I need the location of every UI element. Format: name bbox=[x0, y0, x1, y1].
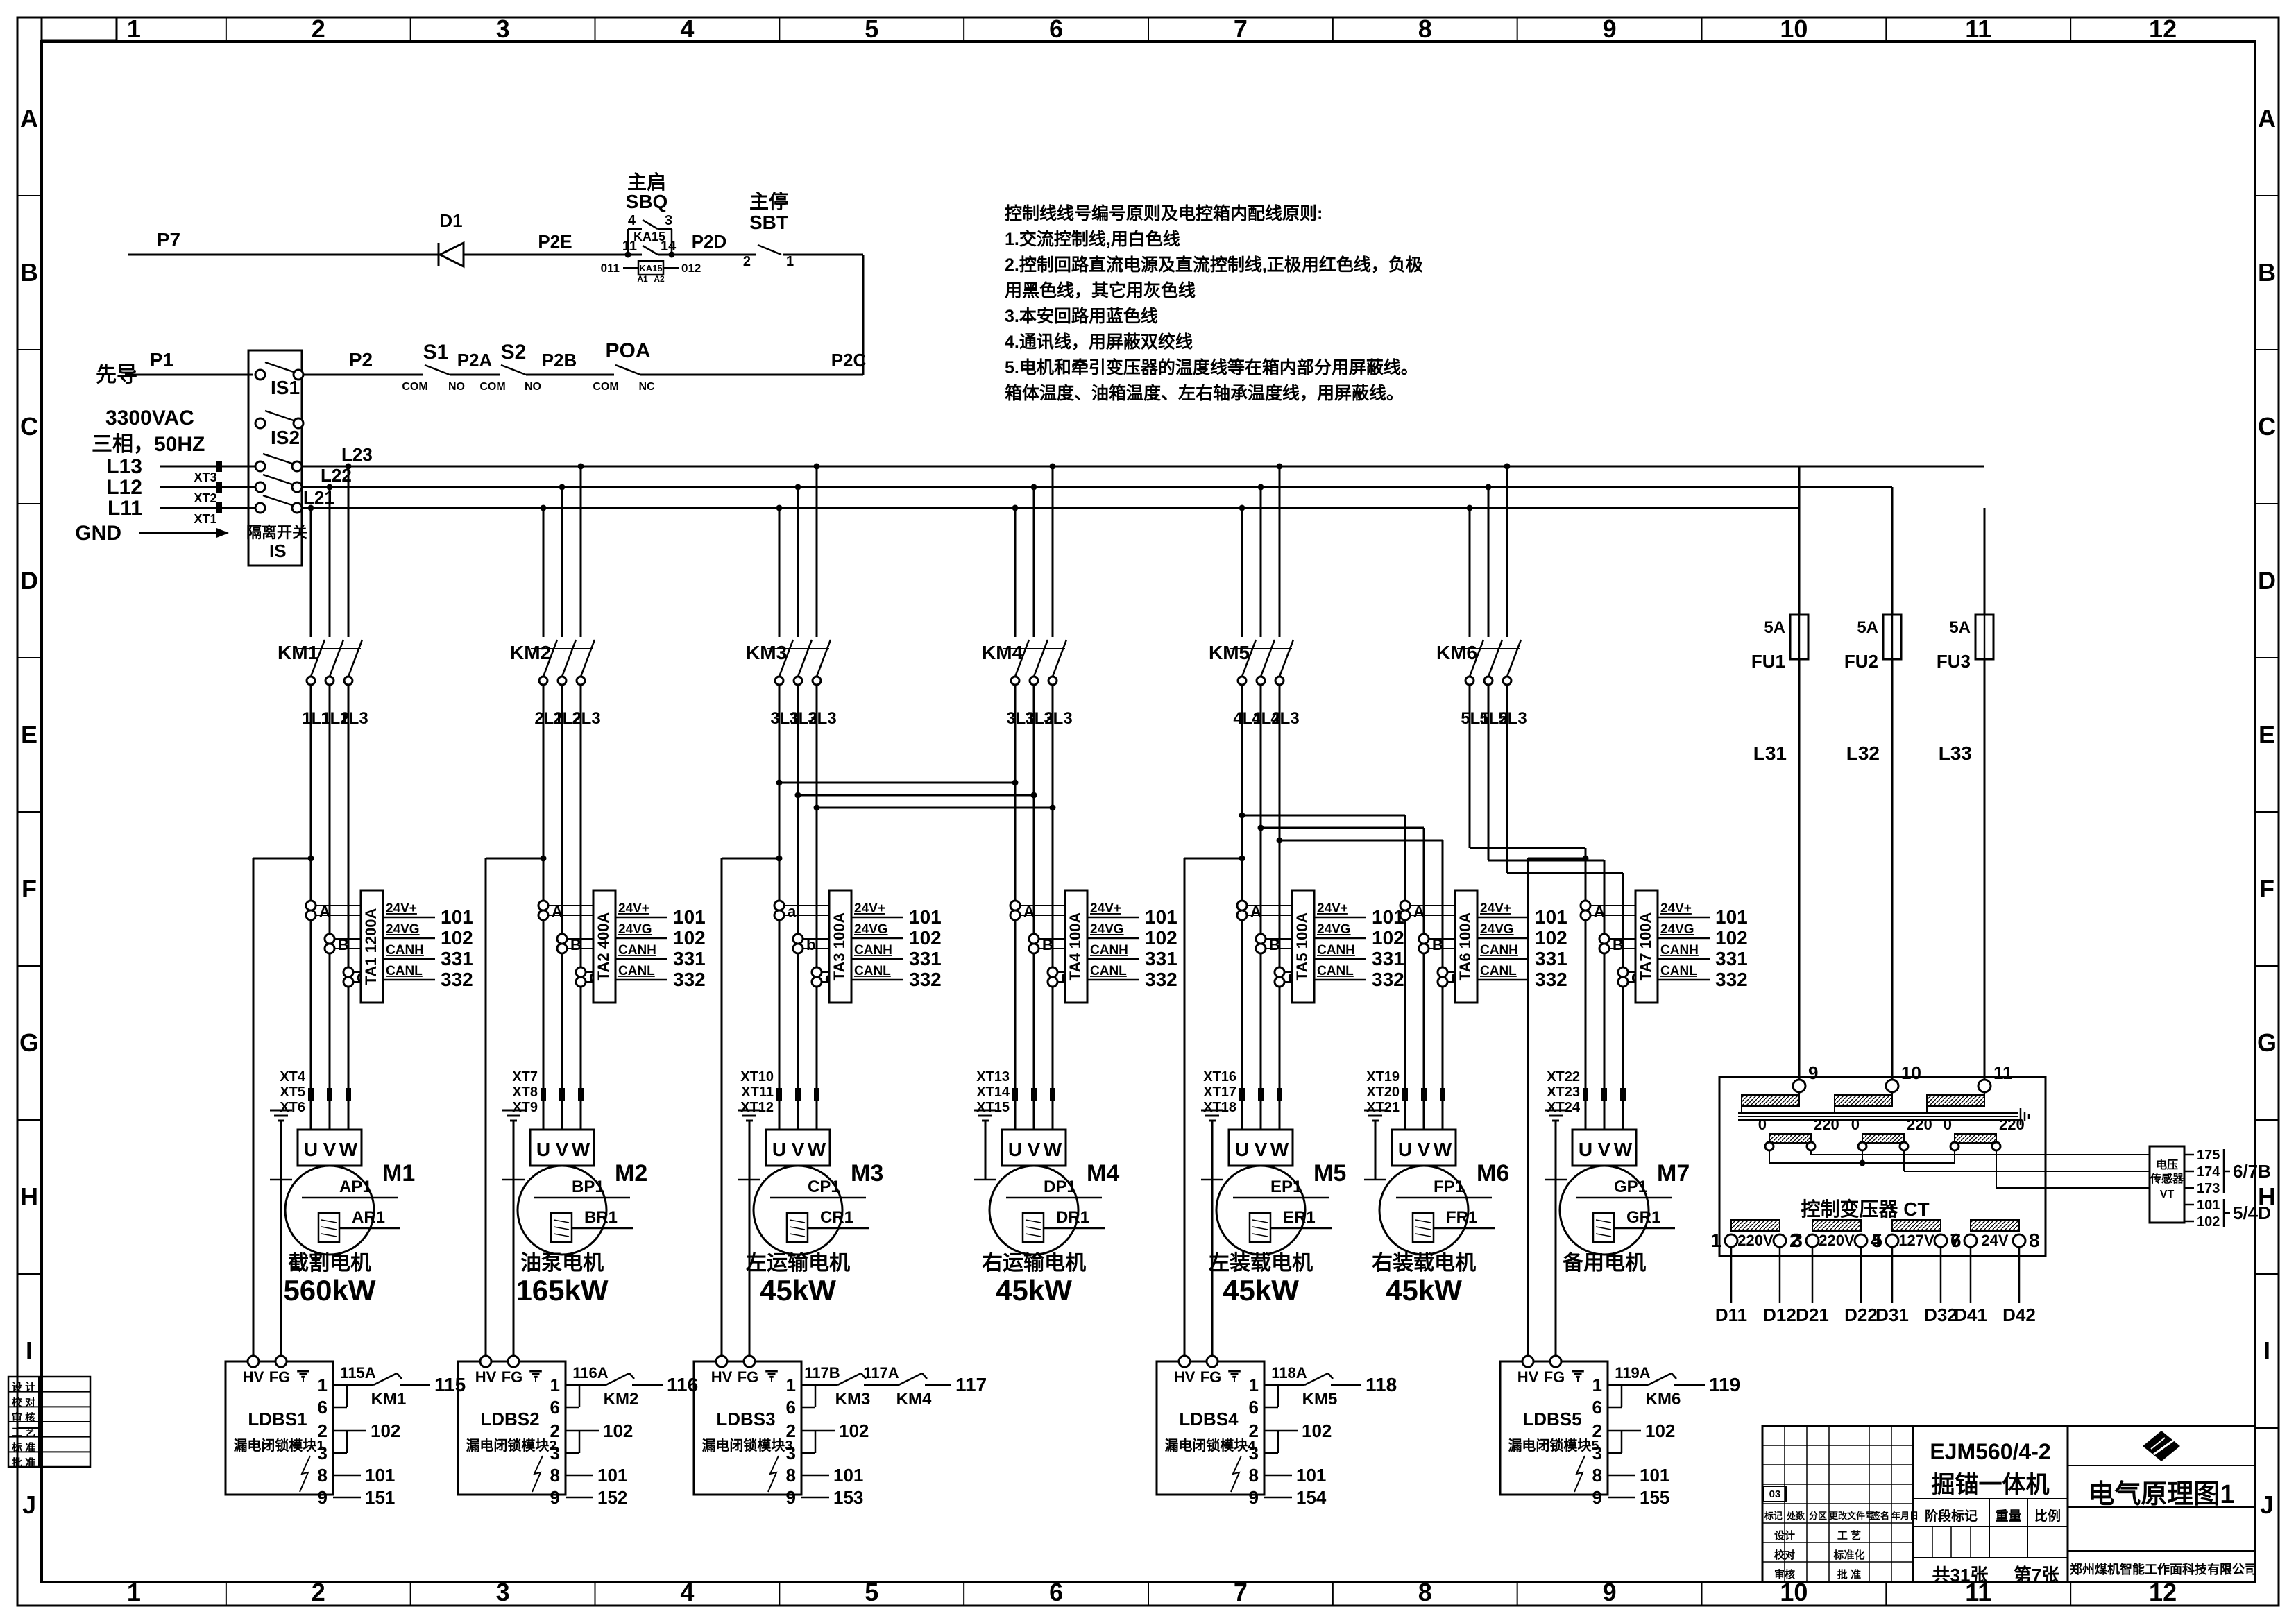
ct-phase-label: b bbox=[806, 936, 815, 953]
ldbs-name: 漏电闭锁模块2 bbox=[466, 1437, 556, 1454]
tb-hdr: 签名 bbox=[1869, 1509, 1891, 1522]
ldbs-pin-number: 9 bbox=[1592, 1487, 1602, 1508]
wire bbox=[263, 454, 292, 464]
ldbs-pin-number: 8 bbox=[550, 1465, 560, 1486]
junction-dot bbox=[1258, 825, 1264, 831]
ta-pin-wire: 331 bbox=[1715, 948, 1748, 969]
grid-row-label: E bbox=[21, 720, 37, 749]
ldbs-wire: 101 bbox=[833, 1465, 863, 1486]
wire bbox=[348, 640, 362, 677]
secondary-tap: 220 bbox=[1999, 1116, 2025, 1133]
schematic-sheet: { "frame":{"columns":["1","2","3","4","5… bbox=[0, 0, 2296, 1623]
terminal bbox=[1207, 1356, 1218, 1367]
start-button-id: SBQ bbox=[626, 191, 668, 212]
motor-xt-label: XT10 bbox=[740, 1069, 774, 1085]
motor-xt-label: XT14 bbox=[976, 1085, 1010, 1100]
contactor-contact bbox=[775, 677, 783, 685]
ta-module-label: TA7 100A bbox=[1637, 912, 1654, 981]
tb-hdr: 处数 bbox=[1785, 1509, 1807, 1522]
ldbs-name: 漏电闭锁模块4 bbox=[1164, 1437, 1256, 1454]
ct-coil bbox=[1048, 977, 1057, 987]
contactor-label: KM3 bbox=[746, 642, 787, 663]
ct-coil bbox=[1599, 934, 1609, 944]
motor-power-conn-label: CP1 bbox=[808, 1178, 840, 1196]
output-terminal-number: 1 bbox=[1710, 1230, 1721, 1251]
terminal-tick bbox=[1402, 1088, 1408, 1101]
motor-xt-label: XT6 bbox=[280, 1100, 305, 1115]
output-voltage: 220V bbox=[1819, 1232, 1855, 1249]
contactor-contact bbox=[539, 677, 547, 685]
ct-phase-label: A bbox=[319, 903, 330, 920]
branch-km2: 2L12L22L3KM2 bbox=[510, 464, 601, 1130]
ldbs-hv-label: HV bbox=[243, 1368, 264, 1386]
ldbs-pin-number: 9 bbox=[1249, 1487, 1259, 1508]
ta-pin-label: 24VG bbox=[854, 922, 888, 937]
grid-row-label: B bbox=[20, 258, 38, 287]
terminal-tick bbox=[578, 1088, 584, 1101]
notes-line: 1.交流控制线,用白色线 bbox=[1005, 226, 1180, 250]
ct-phase-label: A bbox=[1023, 903, 1035, 920]
motor-name: 左运输电机 bbox=[746, 1252, 850, 1275]
grid-row-label: A bbox=[2258, 104, 2276, 133]
ldbs-module-ldbs5: HVFG162389102101155LDBS5漏电闭锁模块5119AKM611… bbox=[1500, 1356, 1740, 1508]
motor-thermistor bbox=[1593, 1213, 1614, 1242]
motor-terminal-label: V bbox=[1255, 1139, 1268, 1160]
motor-power-conn-label: GP1 bbox=[1614, 1178, 1647, 1196]
vt-pin-label: 101 bbox=[2197, 1198, 2220, 1213]
grid-column-label: 12 bbox=[2149, 15, 2177, 43]
motor-thermistor bbox=[787, 1213, 808, 1242]
secondary-tap: 220 bbox=[1814, 1116, 1839, 1133]
tb-weight: 重量 bbox=[1989, 1506, 2027, 1524]
grid-row-label: F bbox=[22, 874, 37, 903]
grid-column-label: 9 bbox=[1603, 1578, 1617, 1606]
wire bbox=[837, 1373, 861, 1385]
label: NO bbox=[448, 381, 465, 393]
leakage-test-symbol bbox=[1231, 1456, 1241, 1492]
output-terminal-number: 8 bbox=[2029, 1230, 2040, 1251]
ta-pin-label: 24V+ bbox=[1480, 901, 1511, 916]
ldbs-wire: 151 bbox=[365, 1487, 395, 1508]
motor-terminal-label: V bbox=[556, 1139, 569, 1160]
grid-column-label: 11 bbox=[1965, 15, 1991, 43]
contactor-contact bbox=[307, 677, 315, 685]
ct-coil bbox=[557, 934, 567, 944]
ct-coil bbox=[1029, 944, 1039, 953]
motor-power: 45kW bbox=[760, 1274, 836, 1307]
ta-pin-wire: 101 bbox=[441, 906, 473, 928]
fuse-rating: 5A bbox=[1857, 618, 1878, 637]
ldbs-pin-number: 6 bbox=[550, 1397, 560, 1418]
ldbs-pin-number: 9 bbox=[786, 1487, 796, 1508]
terminal bbox=[1774, 1234, 1786, 1247]
junction-dot bbox=[1031, 792, 1037, 799]
side-row-label: 标 准 bbox=[8, 1440, 39, 1454]
motor-terminal-label: V bbox=[323, 1139, 337, 1160]
vt-group-label: 6/7B bbox=[2233, 1161, 2271, 1182]
grid-column-label: 7 bbox=[1234, 15, 1248, 43]
grid-row-label: C bbox=[2258, 412, 2276, 441]
motor-power-conn-label: EP1 bbox=[1270, 1178, 1302, 1196]
ta-pin-wire: 101 bbox=[673, 906, 706, 928]
transformer-label: 控制变压器 CT bbox=[1801, 1198, 1929, 1220]
motor-name: 左装载电机 bbox=[1209, 1252, 1313, 1275]
km-aux-contact-label: KM2 bbox=[604, 1390, 639, 1409]
ct-coil bbox=[1581, 901, 1590, 910]
tb-hdr: 年月日 bbox=[1891, 1509, 1913, 1522]
ct-phase-label: A bbox=[1413, 903, 1425, 920]
branch-km1: 1L11L21L3KM1 bbox=[278, 464, 368, 1130]
secondary-tap: 0 bbox=[1944, 1116, 1952, 1133]
motor-xt-label: XT5 bbox=[280, 1085, 305, 1100]
terminal-tick bbox=[1277, 1088, 1282, 1101]
supply-phase: 三相，50HZ bbox=[92, 433, 205, 456]
motor-xt-label: XT21 bbox=[1366, 1100, 1400, 1115]
ldbs-module-ldbs4: HVFG162389102101154LDBS4漏电闭锁模块4118AKM511… bbox=[1157, 1356, 1397, 1508]
ct-coil bbox=[1599, 944, 1609, 953]
isolator-pole-is1: IS1 bbox=[271, 377, 300, 398]
terminal bbox=[744, 1356, 755, 1367]
ta-pin-label: CANH bbox=[1480, 943, 1518, 958]
grid-row-label: D bbox=[20, 566, 38, 595]
motor-group-m4: ABCTA4 100A24V+10124VG102CANH331CANL332X… bbox=[974, 890, 1177, 1307]
terminal bbox=[1807, 1142, 1815, 1150]
primary-winding bbox=[1927, 1095, 1984, 1106]
motor-xt-label: XT22 bbox=[1547, 1069, 1580, 1085]
output-winding bbox=[1812, 1220, 1861, 1231]
terminal bbox=[255, 503, 265, 513]
phase-wire-label: 2L3 bbox=[572, 709, 600, 728]
wire bbox=[425, 365, 450, 375]
terminal bbox=[480, 1356, 491, 1367]
motor-xt-label: XT15 bbox=[976, 1100, 1010, 1115]
motor-thermistor bbox=[1250, 1213, 1270, 1242]
terminal bbox=[1886, 1080, 1898, 1092]
vt-pin-label: 173 bbox=[2197, 1181, 2220, 1196]
output-wire-label: D11 bbox=[1715, 1305, 1747, 1325]
ta-pin-wire: 331 bbox=[909, 948, 942, 969]
phase-wire-label: 5L3 bbox=[1498, 709, 1527, 728]
motor-terminal-label: W bbox=[1044, 1139, 1062, 1160]
ldbs-name: 漏电闭锁模块1 bbox=[233, 1437, 324, 1454]
ta-pin-label: CANH bbox=[386, 943, 424, 958]
motor-name: 备用电机 bbox=[1563, 1251, 1646, 1275]
motor-thermistor-label: AR1 bbox=[352, 1208, 385, 1227]
ldbs-pin-number: 8 bbox=[786, 1465, 796, 1486]
ta-pin-label: CANH bbox=[618, 943, 656, 958]
secondary-winding bbox=[1955, 1134, 1996, 1143]
km-aux-contact-label: KM1 bbox=[371, 1390, 407, 1409]
output-voltage: 127V bbox=[1898, 1232, 1934, 1249]
grid-column-label: 4 bbox=[680, 1578, 694, 1606]
motor-thermistor-label: ER1 bbox=[1283, 1208, 1316, 1227]
fuse-rating: 5A bbox=[1949, 618, 1971, 637]
grid-row-label: E bbox=[2259, 720, 2275, 749]
ct-coil bbox=[1400, 910, 1410, 920]
grid-column-label: 7 bbox=[1234, 1578, 1248, 1606]
ldbs-wire: 117B bbox=[804, 1364, 840, 1382]
ldbs-pin-number: 8 bbox=[318, 1465, 328, 1486]
motor-thermistor bbox=[551, 1213, 572, 1242]
grid-column-label: 4 bbox=[680, 15, 694, 43]
label: 4 bbox=[628, 213, 636, 228]
ldbs-pin-number: 6 bbox=[1249, 1397, 1259, 1418]
ta-pin-wire: 332 bbox=[673, 969, 706, 990]
ct-coil bbox=[1400, 901, 1410, 910]
voltage-sensor: 电压传感器VT1751741731011026/7B5/4D bbox=[2150, 1146, 2271, 1230]
motor-thermistor-label: GR1 bbox=[1626, 1208, 1660, 1227]
contactor-contact bbox=[1484, 677, 1493, 685]
ct-phase-label: A bbox=[1594, 903, 1605, 920]
tb-row-label: 设计 bbox=[1762, 1528, 1807, 1543]
isolator-id: IS bbox=[269, 541, 287, 561]
ldbs-name: 漏电闭锁模块3 bbox=[701, 1437, 792, 1454]
ldbs-wire: 119A bbox=[1615, 1364, 1650, 1382]
motor-terminal-label: W bbox=[572, 1139, 590, 1160]
ta-pin-wire: 331 bbox=[1535, 948, 1567, 969]
terminal bbox=[716, 1356, 727, 1367]
ta-pin-wire: 101 bbox=[1145, 906, 1177, 928]
leakage-test-symbol bbox=[532, 1456, 543, 1492]
terminal bbox=[1855, 1234, 1867, 1247]
ct-phase-label: B bbox=[1042, 936, 1053, 953]
ldbs-id: LDBS2 bbox=[480, 1409, 539, 1429]
motor-group-m2: ABCTA2 400A24V+10124VG102CANH331CANL332X… bbox=[486, 856, 706, 1357]
secondary-tap: 0 bbox=[1758, 1116, 1767, 1133]
notes-line: 3.本安回路用蓝色线 bbox=[1005, 303, 1158, 328]
ta-pin-label: 24VG bbox=[618, 922, 652, 937]
terminal-tick bbox=[1601, 1088, 1607, 1101]
terminal-tick bbox=[1258, 1088, 1264, 1101]
ldbs-wire: 102 bbox=[1302, 1420, 1332, 1441]
motor-terminal-label: W bbox=[808, 1139, 826, 1160]
motor-terminal-label: W bbox=[1614, 1139, 1633, 1160]
ct-coil bbox=[1237, 910, 1247, 920]
side-row-label: 校 对 bbox=[8, 1395, 39, 1409]
ldbs-id: LDBS4 bbox=[1179, 1409, 1239, 1429]
terminal bbox=[508, 1356, 519, 1367]
terminal-xt-label: XT2 bbox=[194, 491, 216, 505]
wire bbox=[1261, 640, 1275, 677]
motor-xt-label: XT8 bbox=[512, 1085, 538, 1100]
terminal bbox=[1765, 1142, 1774, 1150]
ldbs-pin-number: 8 bbox=[1249, 1465, 1259, 1486]
ldbs-pin-number: 1 bbox=[786, 1375, 796, 1395]
diode-label: D1 bbox=[439, 210, 462, 231]
wire bbox=[501, 365, 526, 375]
terminal bbox=[1522, 1356, 1533, 1367]
grid-row-label: G bbox=[19, 1028, 39, 1057]
ta-pin-wire: 102 bbox=[1535, 927, 1567, 949]
motor-terminal-label: U bbox=[1398, 1139, 1412, 1160]
terminal-xt-label: XT3 bbox=[194, 470, 216, 484]
grid-row-label: I bbox=[2263, 1336, 2270, 1365]
switch-s2: S2 bbox=[501, 341, 527, 364]
ldbs-fg-label: FG bbox=[1200, 1368, 1222, 1386]
junction-dot bbox=[1239, 856, 1245, 862]
terminal bbox=[1886, 1234, 1898, 1247]
leakage-test-symbol bbox=[768, 1456, 779, 1492]
side-row-label: 工 艺 bbox=[8, 1425, 39, 1439]
notes-line: 4.通讯线，用屏蔽双绞线 bbox=[1005, 328, 1193, 353]
ta-module-label: TA4 100A bbox=[1066, 912, 1084, 981]
start-button-name: 主启 bbox=[627, 171, 666, 193]
wire bbox=[1507, 640, 1521, 677]
motor-thermistor bbox=[1413, 1213, 1434, 1242]
ldbs-wire: 101 bbox=[1296, 1465, 1326, 1486]
notes-line: 用黑色线，其它用灰色线 bbox=[1005, 277, 1196, 302]
ta-pin-wire: 102 bbox=[1715, 927, 1748, 949]
ta-pin-wire: 102 bbox=[1145, 927, 1177, 949]
fuse-id: FU2 bbox=[1844, 651, 1878, 672]
tb-row-label: 校对 bbox=[1762, 1547, 1807, 1562]
control-transformer: 91011022002200220控制变压器 CT12220VD11D12342… bbox=[1710, 1062, 2150, 1325]
contactor-contact bbox=[1503, 677, 1511, 685]
ta-pin-label: 24V+ bbox=[1660, 901, 1692, 916]
ta-pin-label: 24V+ bbox=[854, 901, 885, 916]
vt-label: 传感器 bbox=[2150, 1172, 2184, 1185]
ta-pin-label: 24V+ bbox=[618, 901, 649, 916]
motor-terminal-label: U bbox=[304, 1139, 318, 1160]
ldbs-wire: 115 bbox=[434, 1374, 466, 1395]
output-winding bbox=[1731, 1220, 1780, 1231]
junction-dot bbox=[1277, 838, 1283, 844]
ldbs-pin-number: 1 bbox=[1249, 1375, 1259, 1395]
motor-xt-label: XT23 bbox=[1547, 1085, 1580, 1100]
ldbs-id: LDBS3 bbox=[716, 1409, 775, 1429]
motor-terminal-label: W bbox=[1434, 1139, 1452, 1160]
ct-coil bbox=[1275, 967, 1284, 977]
terminal bbox=[248, 1356, 259, 1367]
ta-pin-wire: 101 bbox=[1372, 906, 1404, 928]
ground-arrow bbox=[216, 528, 229, 538]
fuse-wire-label: L31 bbox=[1753, 742, 1787, 764]
terminal-tick bbox=[1239, 1088, 1245, 1101]
ta-pin-label: CANL bbox=[1317, 964, 1354, 978]
ldbs-wire: 117 bbox=[955, 1374, 987, 1395]
leakage-test-symbol bbox=[1574, 1456, 1585, 1492]
km-aux-contact-label: KM6 bbox=[1646, 1390, 1681, 1409]
terminal bbox=[1179, 1356, 1190, 1367]
junction-dot bbox=[795, 792, 801, 799]
wire bbox=[1053, 640, 1066, 677]
motor-id: M6 bbox=[1477, 1160, 1509, 1187]
switch-s1: S1 bbox=[423, 341, 449, 364]
ldbs-pin-number: 1 bbox=[550, 1375, 560, 1395]
ldbs-wire: 118A bbox=[1271, 1364, 1307, 1382]
motor-thermistor-label: BR1 bbox=[584, 1208, 618, 1227]
secondary-tap: 220 bbox=[1907, 1116, 1932, 1133]
ct-coil bbox=[1256, 934, 1266, 944]
terminal bbox=[292, 461, 302, 471]
motor-terminal-label: V bbox=[1598, 1139, 1611, 1160]
wire bbox=[606, 1373, 629, 1385]
wire-label-p7: P7 bbox=[157, 229, 180, 250]
terminal-tick bbox=[795, 1088, 801, 1101]
terminal bbox=[1858, 1142, 1866, 1150]
ta-pin-label: CANL bbox=[1660, 964, 1697, 978]
junction-dot bbox=[1239, 813, 1245, 819]
transformer-primary-terminal: 9 bbox=[1808, 1062, 1818, 1083]
terminal-tick bbox=[814, 1088, 819, 1101]
wire bbox=[758, 245, 781, 255]
ldbs-module-ldbs3: HVFG162389102101153LDBS3漏电闭锁模块3117BKM311… bbox=[694, 1356, 987, 1508]
km-aux-contact-label: KM3 bbox=[835, 1390, 871, 1409]
ta-pin-label: 24V+ bbox=[1317, 901, 1348, 916]
notes-line: 箱体温度、油箱温度、左右轴承温度线，用屏蔽线。 bbox=[1005, 380, 1404, 405]
ct-coil bbox=[306, 910, 316, 920]
motor-xt-label: XT18 bbox=[1203, 1100, 1236, 1115]
grid-row-label: H bbox=[20, 1182, 38, 1211]
wire bbox=[798, 640, 812, 677]
branch-km4: 3L13L23L3KM4 bbox=[982, 464, 1073, 1130]
ldbs-pin-number: 6 bbox=[1592, 1397, 1602, 1418]
ct-coil bbox=[1618, 967, 1628, 977]
motor-thermistor-label: DR1 bbox=[1056, 1208, 1089, 1227]
ct-coil bbox=[576, 977, 586, 987]
contactor-contact bbox=[794, 677, 802, 685]
motor-name: 油泵电机 bbox=[520, 1252, 604, 1275]
tb-scale: 比例 bbox=[2027, 1506, 2068, 1524]
fuse-wire-label: L33 bbox=[1939, 742, 1972, 764]
label: 3 bbox=[665, 213, 672, 228]
ct-phase-label: A bbox=[1250, 903, 1261, 920]
junction-dot bbox=[308, 856, 314, 862]
ldbs-fg-label: FG bbox=[502, 1368, 523, 1386]
output-voltage: 220V bbox=[1737, 1232, 1774, 1249]
motor-name: 右运输电机 bbox=[982, 1252, 1086, 1275]
terminal-tick bbox=[1620, 1088, 1626, 1101]
ta-pin-label: 24VG bbox=[1660, 922, 1694, 937]
ta-pin-label: CANL bbox=[386, 964, 423, 978]
control-fuses: 5AFU1L315AFU2L325AFU3L33 bbox=[1751, 466, 1993, 1080]
ta-pin-label: 24VG bbox=[1480, 922, 1514, 937]
grid-column-label: 1 bbox=[127, 15, 141, 43]
output-wire-label: D31 bbox=[1876, 1305, 1909, 1325]
grid-column-label: 3 bbox=[496, 1578, 510, 1606]
ta-pin-label: CANH bbox=[1090, 943, 1128, 958]
junction-dot bbox=[541, 856, 547, 862]
contactor-label: KM2 bbox=[510, 642, 551, 663]
ta-pin-wire: 102 bbox=[673, 927, 706, 949]
grid-row-label: B bbox=[2258, 258, 2276, 287]
control-circuit: P7D1P2E主启SBQ43KA151114KA15011012A1A2P2D主… bbox=[128, 171, 863, 375]
ldbs-wire: 102 bbox=[371, 1420, 400, 1441]
vt-pin-label: 102 bbox=[2197, 1214, 2220, 1230]
wire bbox=[1328, 1373, 1333, 1379]
label: KA15 bbox=[639, 263, 662, 273]
wire bbox=[922, 1373, 927, 1379]
leakage-test-symbol bbox=[300, 1456, 310, 1492]
branch-km6: 5L15L25L3KM6 bbox=[1436, 464, 1623, 874]
motor-xt-label: XT9 bbox=[512, 1100, 538, 1115]
ct-coil bbox=[793, 944, 803, 953]
output-wire-label: D32 bbox=[1924, 1305, 1957, 1325]
motor-xt-label: XT12 bbox=[740, 1100, 774, 1115]
fuse-id: FU1 bbox=[1751, 651, 1785, 672]
motor-terminal-label: V bbox=[1028, 1139, 1041, 1160]
ta-module-label: TA3 100A bbox=[831, 912, 848, 981]
ct-coil bbox=[1581, 910, 1590, 920]
transformer-primary-terminal: 11 bbox=[1993, 1062, 2013, 1083]
wire bbox=[263, 475, 292, 484]
ta-pin-label: CANL bbox=[1090, 964, 1127, 978]
branch-km5: 4L14L24L3KM5 bbox=[1209, 464, 1300, 1130]
terminal-tick bbox=[1050, 1088, 1055, 1101]
junction-dot bbox=[1860, 1160, 1866, 1166]
phase-wire-label: 3L3 bbox=[1044, 709, 1072, 728]
ldbs-pin-number: 6 bbox=[786, 1397, 796, 1418]
